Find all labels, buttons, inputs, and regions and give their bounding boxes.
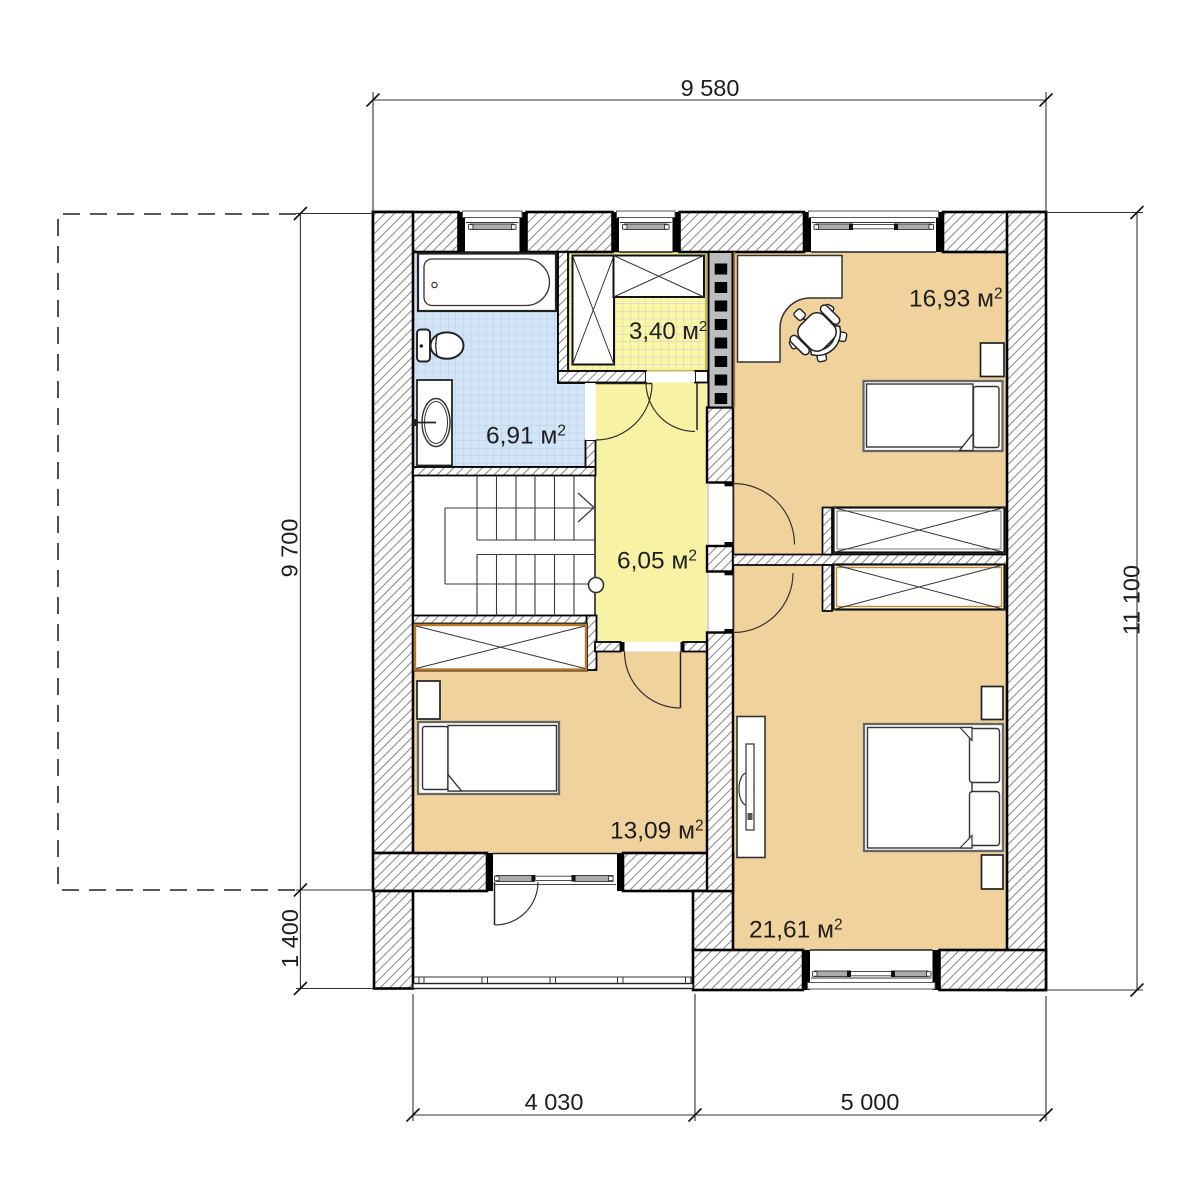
svg-text:9 580: 9 580 (681, 75, 740, 101)
svg-text:11 100: 11 100 (1119, 565, 1145, 635)
svg-text:16,93 м2: 16,93 м2 (909, 286, 1003, 313)
svg-text:1 400: 1 400 (277, 909, 303, 968)
svg-text:13,09 м2: 13,09 м2 (610, 818, 704, 845)
svg-text:21,61 м2: 21,61 м2 (749, 917, 843, 944)
svg-text:6,05 м2: 6,05 м2 (617, 548, 697, 575)
svg-text:4 030: 4 030 (525, 1089, 584, 1115)
svg-text:6,91 м2: 6,91 м2 (486, 423, 566, 450)
svg-text:5 000: 5 000 (841, 1089, 900, 1115)
svg-text:3,40 м2: 3,40 м2 (629, 318, 707, 345)
svg-text:9 700: 9 700 (277, 519, 303, 578)
